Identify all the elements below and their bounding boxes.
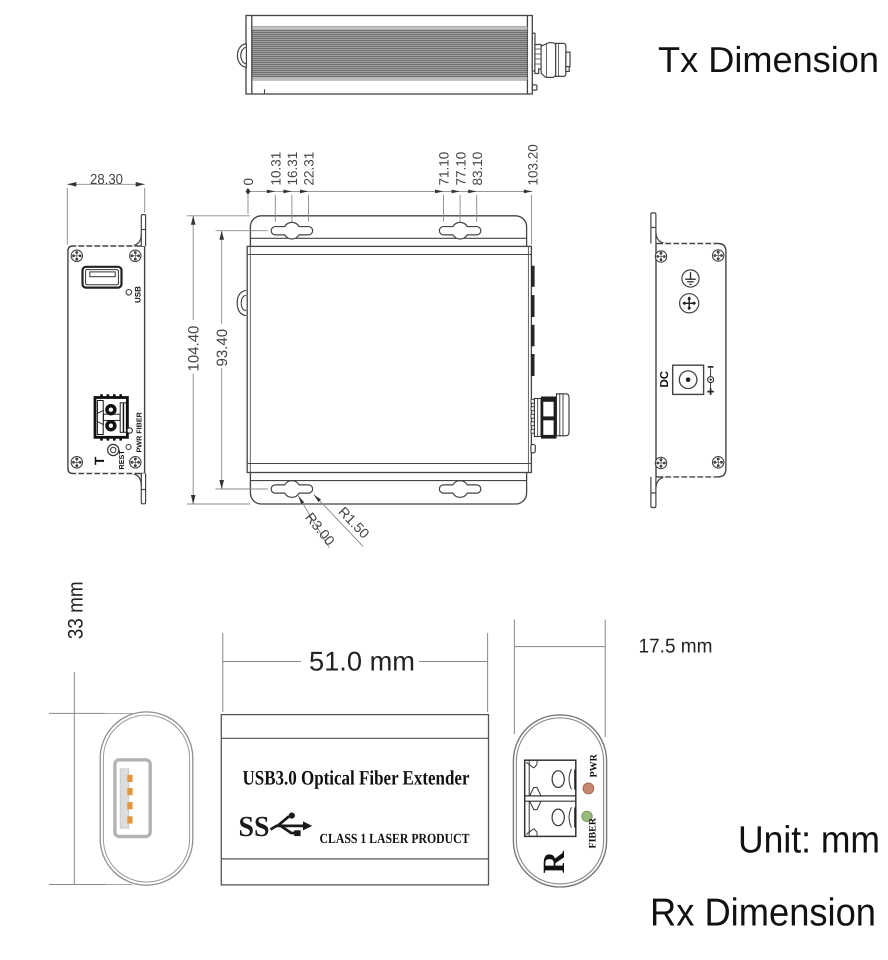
svg-text:R: R [536,851,571,874]
svg-text:DC: DC [659,371,671,388]
svg-text:FIBER: FIBER [587,817,598,848]
svg-text:17.5 mm: 17.5 mm [639,636,713,658]
svg-text:CLASS 1 LASER PRODUCT: CLASS 1 LASER PRODUCT [320,832,471,847]
svg-text:SS: SS [239,811,270,843]
svg-text:T: T [92,456,107,465]
svg-text:22.31: 22.31 [302,152,317,186]
svg-text:Unit: mm: Unit: mm [738,820,880,862]
svg-text:28.30: 28.30 [90,172,123,188]
svg-text:Rx Dimension: Rx Dimension [650,892,876,935]
svg-text:0: 0 [241,178,256,186]
svg-text:93.40: 93.40 [214,329,231,367]
svg-text:103.20: 103.20 [526,144,541,185]
svg-text:83.10: 83.10 [470,152,485,186]
svg-text:16.31: 16.31 [285,152,300,186]
svg-text:71.10: 71.10 [437,152,452,186]
svg-text:REST: REST [117,450,126,470]
svg-text:PWR: PWR [589,753,600,777]
svg-text:USB3.0 Optical Fiber Extender: USB3.0 Optical Fiber Extender [243,768,470,790]
svg-text:104.40: 104.40 [186,326,203,372]
svg-text:PWR FIBER: PWR FIBER [135,411,144,452]
svg-text:33 mm: 33 mm [64,581,87,639]
svg-text:51.0 mm: 51.0 mm [309,647,415,677]
svg-text:77.10: 77.10 [453,152,468,186]
svg-text:USB: USB [134,286,143,303]
svg-text:Tx Dimension: Tx Dimension [658,39,879,80]
svg-text:10.31: 10.31 [269,152,284,186]
